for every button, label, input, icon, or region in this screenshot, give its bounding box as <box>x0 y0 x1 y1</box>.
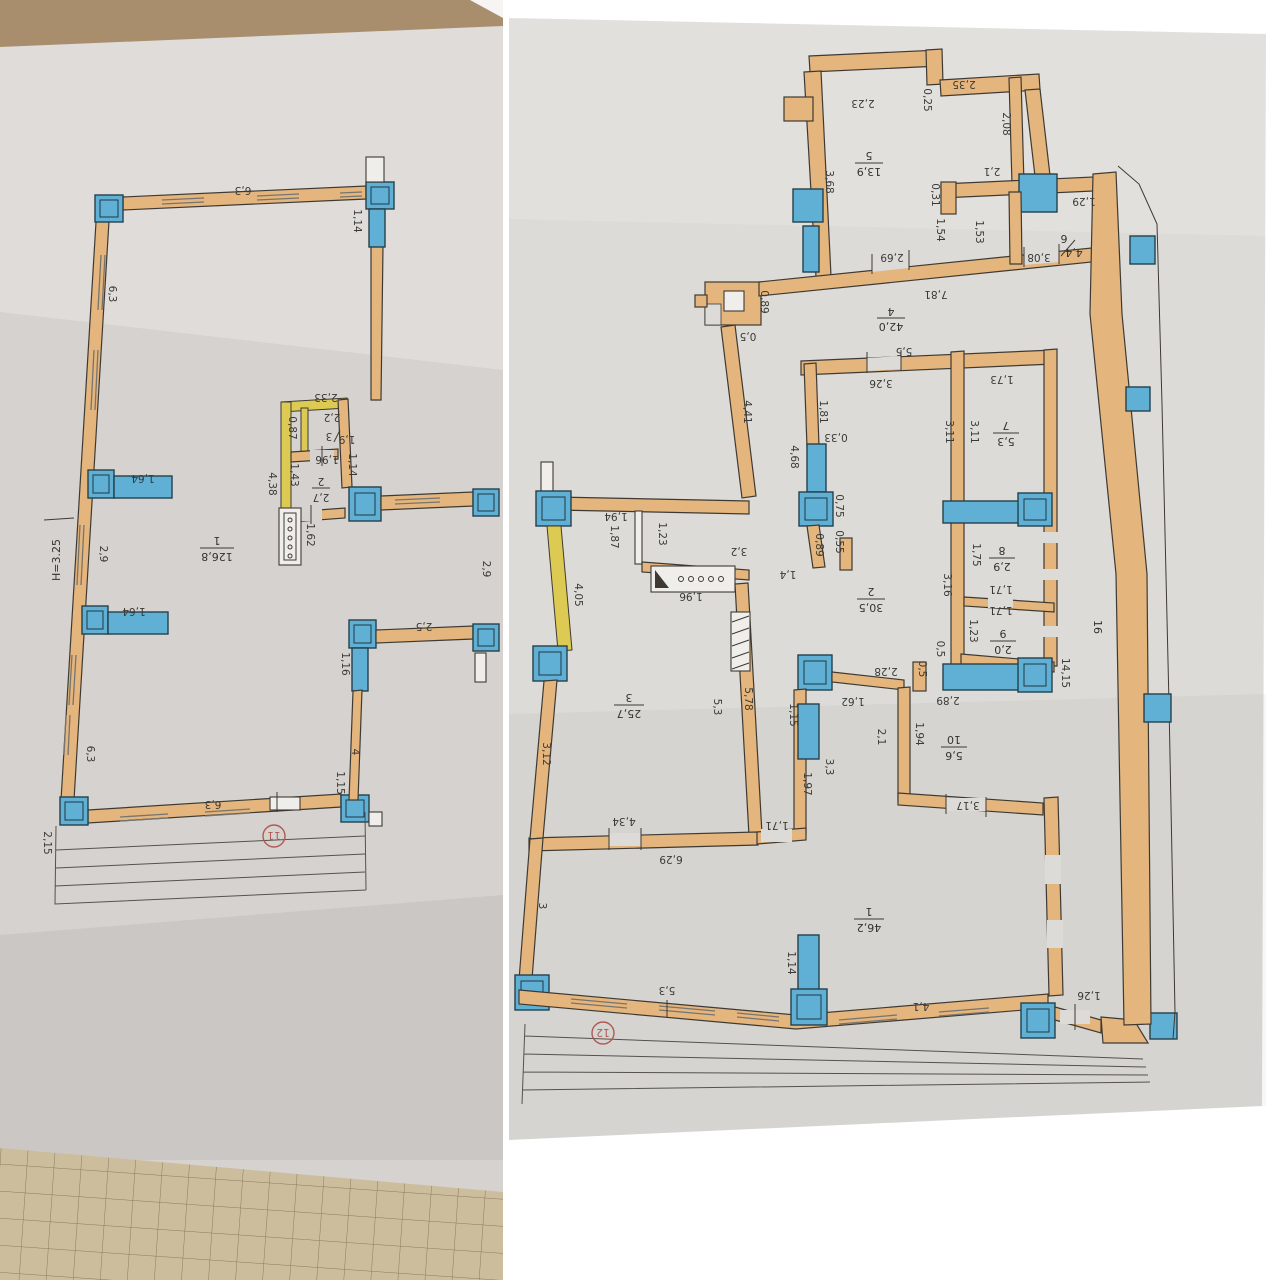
dim-label: 1,73 <box>990 373 1013 385</box>
dim-label: 4,05 <box>572 583 584 606</box>
dim-label: 6,3 <box>235 184 252 196</box>
column <box>533 646 567 681</box>
dim-label: 2,35 <box>952 78 975 90</box>
dim-label: 1,97 <box>801 772 813 795</box>
dim-label: 1,16 <box>339 652 351 676</box>
dim-label: 0,55 <box>833 530 845 553</box>
dim-label: 3,11 <box>968 420 980 443</box>
column <box>349 487 381 521</box>
radiator <box>807 444 826 492</box>
room-area: 30,5 <box>859 601 884 614</box>
dim-label: 3,3 <box>823 759 835 776</box>
dim-label: 1,14 <box>346 453 358 477</box>
dim-label: 2,1 <box>984 165 1001 177</box>
dim-label: 1,81 <box>817 400 829 423</box>
glazed-partition <box>943 501 1021 523</box>
room-area: 126,8 <box>201 550 233 563</box>
dim-label: 1,71 <box>989 583 1012 595</box>
dim-label: 1,43 <box>288 463 300 486</box>
dim-label: 0,89 <box>758 290 770 313</box>
dim-label: 2,08 <box>1000 112 1012 135</box>
room-number: 1 <box>214 534 221 547</box>
dim-label: 2,15 <box>41 831 53 854</box>
room-area: 46,2 <box>857 921 882 934</box>
radiator <box>798 704 819 759</box>
room-number: 1 <box>866 905 873 918</box>
dim-label: 2,2 <box>324 411 341 423</box>
dim-label: 3,2 <box>731 545 748 557</box>
dim-label: 3 <box>536 903 548 910</box>
dim-label: 4,38 <box>266 472 278 495</box>
partition <box>635 511 642 564</box>
wall-notch <box>784 97 813 121</box>
room-area: 1,9 <box>339 433 356 445</box>
window <box>793 189 823 222</box>
dim-label: 5,3 <box>659 984 676 996</box>
dim-label: 1,14 <box>351 209 363 233</box>
door-opening <box>609 833 641 846</box>
dim-label: 1,62 <box>841 695 864 707</box>
dim-label: 1,15 <box>787 703 799 726</box>
column <box>1018 493 1052 526</box>
dim-label: 1,62 <box>304 523 316 546</box>
column <box>798 655 832 690</box>
dim-label: 1,64 <box>131 472 155 484</box>
dim-label: 2,9 <box>480 561 492 578</box>
wall-stub <box>941 182 956 214</box>
room-number: 16 <box>1091 620 1104 634</box>
dim-label: 2,23 <box>851 97 874 109</box>
room-area: 5,3 <box>997 435 1015 448</box>
dim-label: 1,94 <box>604 510 628 522</box>
door-opening <box>270 797 300 810</box>
window <box>1126 387 1150 411</box>
sheet-number: 11 <box>267 829 280 841</box>
dim-label: 1,71 <box>765 819 788 831</box>
wall <box>371 246 383 400</box>
room-area: 13,9 <box>857 165 882 178</box>
dim-label: 3,26 <box>869 377 893 389</box>
door-opening <box>867 356 901 371</box>
dim-label: 1,54 <box>934 218 946 242</box>
dim-label: 2,5 <box>416 620 433 632</box>
dim-label: 1,64 <box>122 605 146 617</box>
window <box>1130 236 1155 264</box>
dim-label: 3,12 <box>540 742 552 765</box>
dim-label: 3,08 <box>1027 251 1050 263</box>
dim-label: 0,33 <box>824 431 847 443</box>
room-number: 7 <box>1003 419 1010 432</box>
dim-label: 3,17 <box>956 799 979 811</box>
sheet-number: 12 <box>596 1026 609 1038</box>
dim-label: 1,15 <box>334 771 346 794</box>
dim-label: 1,87 <box>608 525 620 548</box>
room-number: 8 <box>999 544 1006 557</box>
room-number: 4 <box>888 305 895 318</box>
dim-label: 1,75 <box>970 543 982 566</box>
dim-label: 0,75 <box>833 494 845 517</box>
dim-label: 1,94 <box>913 722 925 746</box>
dim-label: 0,5 <box>740 330 757 342</box>
entry-notch <box>695 282 761 325</box>
window <box>1019 174 1057 212</box>
room-number: 10 <box>947 733 961 746</box>
dim-label: 6,3 <box>205 798 222 810</box>
dim-label: 1,96 <box>679 590 703 602</box>
height-note: H=3.25 <box>50 539 63 581</box>
screenshot-canvas: 11 6,3 1,14 6,3 2,33 0,87 2,2 3 1,9 1,96… <box>0 0 1280 1280</box>
dim-label: 1,96 <box>315 453 339 465</box>
dim-label: 2,69 <box>880 251 903 263</box>
dim-label: 6,29 <box>659 853 682 865</box>
dim-label: 3,68 <box>823 170 835 193</box>
dim-label: 2,1 <box>875 729 887 746</box>
dim-label: 2,33 <box>314 391 337 403</box>
room-area: 2,7 <box>313 491 330 503</box>
paper-background <box>509 14 1280 1146</box>
dim-label: 5,3 <box>711 699 723 716</box>
dim-label: 3,16 <box>941 573 953 597</box>
dim-label: 1,14 <box>785 951 797 975</box>
wall <box>1009 192 1022 264</box>
window <box>1144 694 1171 722</box>
room-number: 2 <box>868 585 875 598</box>
left-floorplan-photo: 11 6,3 1,14 6,3 2,33 0,87 2,2 3 1,9 1,96… <box>0 0 503 1280</box>
dim-label: 3,11 <box>943 420 955 443</box>
dim-label: 5,5 <box>896 345 913 357</box>
room-area: 42,0 <box>879 320 904 333</box>
dim-label: 2,89 <box>936 694 959 706</box>
column <box>536 491 571 526</box>
dim-label: 1,29 <box>1072 195 1095 207</box>
dim-label: 1,71 <box>989 604 1012 616</box>
dim-label: 1,26 <box>1077 989 1101 1001</box>
dim-label: 0,89 <box>813 533 825 556</box>
room-number: 9 <box>1000 627 1007 640</box>
dim-label: 4,68 <box>788 445 800 468</box>
dim-label: 0,25 <box>921 88 933 111</box>
dim-label: 5,78 <box>742 687 754 710</box>
dim-label: 14,15 <box>1059 658 1071 688</box>
room-number: 5 <box>866 149 873 162</box>
room-number: 3 <box>326 430 333 442</box>
dim-label: 6,3 <box>84 746 96 763</box>
right-floorplan-photo: 12 2,23 0,25 2,35 2,08 5 13,9 3,68 0,31 … <box>509 14 1280 1146</box>
dim-label: 4,1 <box>913 1000 930 1012</box>
dim-label: 2,28 <box>874 665 897 677</box>
dim-label: 6,3 <box>106 286 118 303</box>
dim-label: 7,81 <box>924 288 947 300</box>
radiator <box>798 935 819 997</box>
room-area: 5,6 <box>945 749 963 762</box>
glazed-partition <box>943 664 1021 690</box>
dim-label: 0,5 <box>916 661 928 678</box>
room-area: 25,7 <box>617 707 642 720</box>
column <box>1021 1003 1055 1038</box>
room-number: 6 <box>1061 232 1068 245</box>
column <box>1018 658 1052 692</box>
dim-label: 1,23 <box>656 522 668 545</box>
radiator <box>803 226 819 272</box>
room-area: 2,0 <box>994 643 1012 656</box>
room-number: 3 <box>626 691 633 704</box>
dim-label: 0,31 <box>929 183 941 206</box>
room-area: 2,9 <box>993 560 1011 573</box>
dim-label: 4,41 <box>741 400 753 423</box>
dim-label: 0,5 <box>934 641 946 658</box>
dim-label: 1,4 <box>779 568 796 580</box>
dim-label: 4,34 <box>612 815 636 827</box>
dim-label: 2,9 <box>97 546 109 563</box>
dim-label: 1,23 <box>967 619 979 642</box>
column <box>799 492 833 526</box>
column <box>791 989 827 1025</box>
dim-label: 4 <box>349 749 361 756</box>
dim-label: 0,87 <box>286 416 298 439</box>
dim-label: 1,53 <box>973 220 985 243</box>
room-number: 2 <box>318 475 325 487</box>
